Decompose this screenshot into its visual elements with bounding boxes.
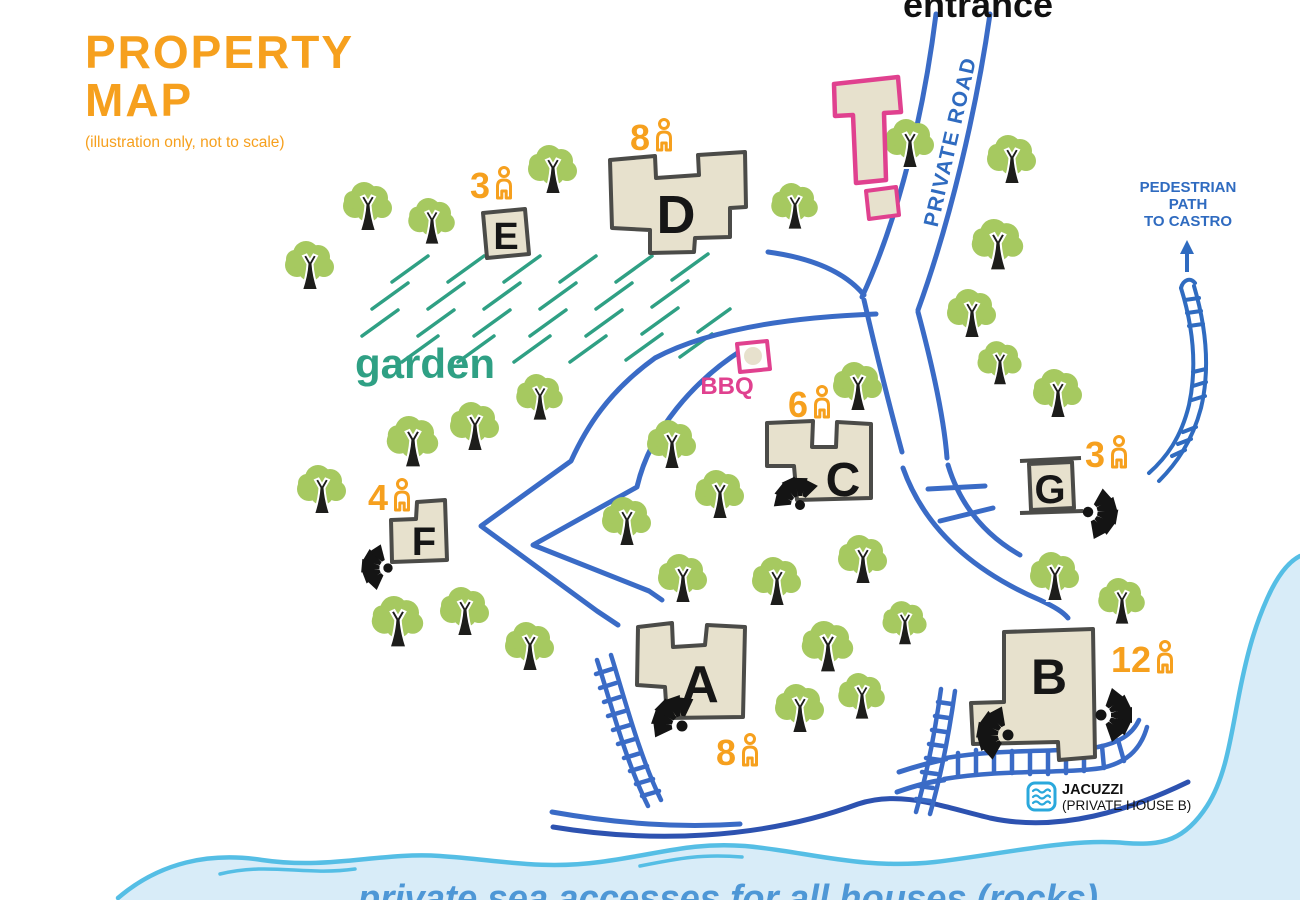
house-g-capacity: 3 bbox=[1085, 434, 1105, 475]
tree bbox=[408, 198, 455, 245]
house-g-label: G bbox=[1034, 468, 1065, 512]
house-c-capacity: 6 bbox=[788, 384, 808, 425]
tree bbox=[516, 374, 563, 421]
map-canvas: private sea accesses for all houses (roc… bbox=[0, 0, 1300, 900]
pedestrian-label-line2: PATH bbox=[1169, 196, 1208, 213]
tree bbox=[528, 145, 577, 194]
light-icon bbox=[1078, 486, 1121, 543]
house-f-label: F bbox=[412, 520, 436, 564]
person-icon bbox=[1113, 437, 1126, 468]
jacuzzi-label: JACUZZI bbox=[1062, 782, 1123, 798]
coast-road bbox=[552, 812, 740, 826]
road-edge bbox=[928, 486, 985, 489]
house-e-capacity: 3 bbox=[470, 165, 490, 206]
house-f-capacity: 4 bbox=[368, 477, 388, 518]
road-edge bbox=[940, 508, 993, 521]
tree bbox=[771, 183, 818, 230]
stairs-house-b bbox=[916, 689, 955, 814]
person-icon bbox=[744, 735, 757, 766]
tree bbox=[752, 557, 801, 606]
tree bbox=[802, 621, 853, 672]
person-icon bbox=[658, 120, 671, 151]
road-edge bbox=[768, 252, 864, 295]
property-map-illustration: { "title": { "line1": "PROPERTY", "line2… bbox=[0, 0, 1300, 900]
house-b-label: B bbox=[1031, 649, 1067, 705]
tree bbox=[1098, 578, 1145, 625]
page-subtitle: (illustration only, not to scale) bbox=[85, 134, 285, 151]
tree bbox=[972, 219, 1023, 270]
tree bbox=[775, 684, 824, 733]
tree bbox=[505, 622, 554, 671]
page-title-line1: PROPERTY bbox=[85, 26, 354, 78]
jacuzzi-legend: JACUZZI (PRIVATE HOUSE B) bbox=[1028, 782, 1191, 813]
tree bbox=[285, 241, 334, 290]
tree bbox=[450, 402, 499, 451]
tree bbox=[658, 554, 707, 603]
pedestrian-path-arrow-icon bbox=[1180, 240, 1194, 272]
tree bbox=[838, 673, 885, 720]
sea-access-label: private sea accesses for all houses (roc… bbox=[357, 878, 1098, 900]
house-d-capacity: 8 bbox=[630, 117, 650, 158]
pedestrian-label-line1: PEDESTRIAN bbox=[1140, 179, 1237, 196]
house-b-capacity: 12 bbox=[1111, 639, 1151, 680]
tree bbox=[947, 289, 996, 338]
house-e-label: E bbox=[493, 216, 518, 258]
tree bbox=[440, 587, 489, 636]
house-a-capacity: 8 bbox=[716, 732, 736, 773]
tree bbox=[372, 596, 423, 647]
jacuzzi-sublabel: (PRIVATE HOUSE B) bbox=[1062, 798, 1191, 813]
entrance-label: entrance bbox=[903, 0, 1053, 25]
tree bbox=[343, 182, 392, 231]
garden-label: garden bbox=[355, 340, 495, 387]
tree bbox=[885, 119, 934, 168]
person-icon bbox=[498, 168, 511, 199]
tree bbox=[297, 465, 346, 514]
tree bbox=[978, 341, 1022, 385]
tree bbox=[838, 535, 887, 584]
tree bbox=[695, 470, 744, 519]
tree bbox=[833, 362, 882, 411]
outbuilding bbox=[866, 187, 899, 219]
light-icon bbox=[360, 543, 395, 591]
pedestrian-label-line3: TO CASTRO bbox=[1144, 213, 1232, 230]
person-icon bbox=[396, 480, 409, 511]
page-title-line2: MAP bbox=[85, 74, 193, 126]
tree bbox=[387, 416, 438, 467]
tree bbox=[647, 420, 696, 469]
pedestrian-path-label: PEDESTRIAN PATH TO CASTRO bbox=[1140, 179, 1237, 230]
tree bbox=[1030, 552, 1079, 601]
tree bbox=[883, 601, 927, 645]
tree bbox=[987, 135, 1036, 184]
person-icon bbox=[1159, 642, 1172, 673]
tree bbox=[1033, 369, 1082, 418]
house-c-label: C bbox=[826, 454, 861, 507]
person-icon bbox=[816, 387, 829, 418]
bbq-label: BBQ bbox=[700, 373, 753, 400]
road-edge bbox=[918, 312, 947, 458]
pedestrian-path bbox=[1149, 280, 1206, 481]
house-d-label: D bbox=[657, 185, 696, 245]
